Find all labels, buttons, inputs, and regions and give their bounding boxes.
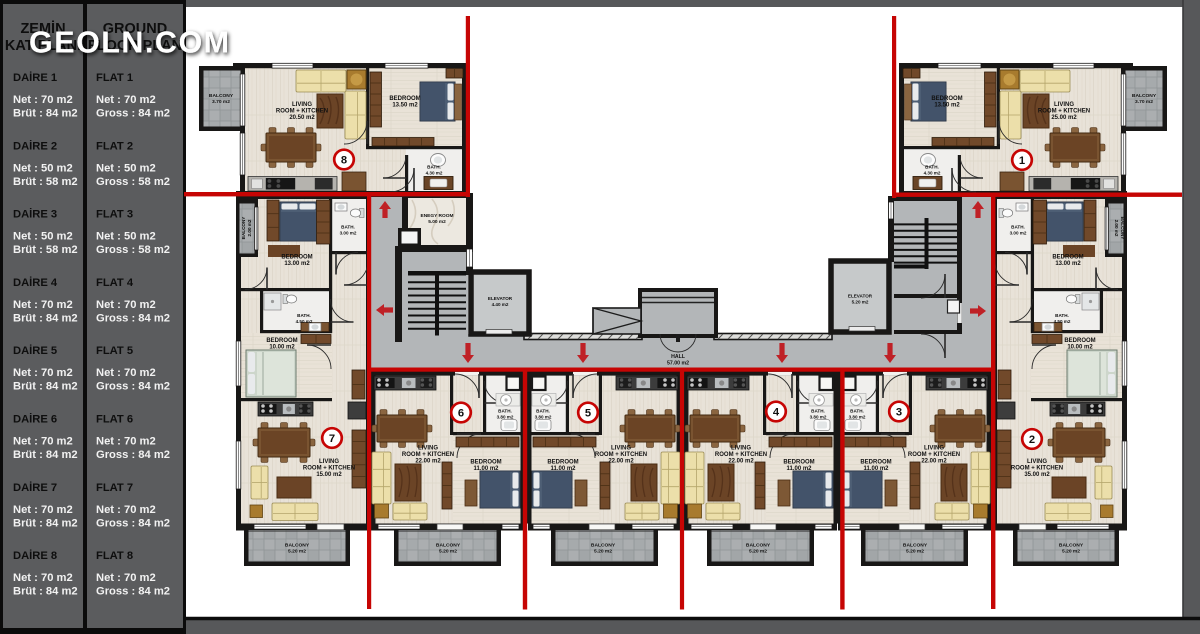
- svg-text:8: 8: [341, 155, 347, 167]
- svg-text:Net : 50 m2: Net : 50 m2: [96, 231, 156, 243]
- svg-text:BATH.: BATH.: [536, 409, 550, 414]
- svg-text:13.00 m2: 13.00 m2: [1055, 261, 1081, 267]
- svg-text:10.00 m2: 10.00 m2: [269, 345, 295, 351]
- svg-text:BALCONY: BALCONY: [746, 543, 771, 549]
- svg-text:Net : 70 m2: Net : 70 m2: [13, 367, 73, 379]
- svg-text:Gross : 84 m2: Gross : 84 m2: [96, 449, 170, 461]
- svg-text:57.00 m2: 57.00 m2: [667, 361, 689, 367]
- svg-text:5.20 m2: 5.20 m2: [288, 549, 306, 555]
- svg-text:LIVING: LIVING: [292, 102, 312, 108]
- svg-text:5.20 m2: 5.20 m2: [852, 300, 869, 305]
- svg-text:DAİRE 5: DAİRE 5: [13, 344, 57, 357]
- svg-text:FLAT 1: FLAT 1: [96, 72, 133, 84]
- svg-text:BALCONY: BALCONY: [209, 93, 234, 99]
- svg-text:Net : 70 m2: Net : 70 m2: [96, 367, 156, 379]
- svg-text:ENEGY ROOM: ENEGY ROOM: [421, 213, 454, 219]
- svg-text:2.00 m2: 2.00 m2: [1114, 220, 1119, 237]
- svg-text:ROOM + KITCHEN: ROOM + KITCHEN: [303, 466, 355, 472]
- svg-text:FLAT 6: FLAT 6: [96, 414, 133, 426]
- svg-text:ELEVATOR: ELEVATOR: [488, 296, 513, 301]
- svg-text:Net : 50 m2: Net : 50 m2: [13, 162, 73, 174]
- svg-text:BALCONY: BALCONY: [1059, 543, 1084, 549]
- svg-text:BATH.: BATH.: [925, 165, 939, 170]
- svg-text:11.00 m2: 11.00 m2: [473, 466, 499, 472]
- svg-text:ELEVATOR: ELEVATOR: [848, 294, 873, 299]
- svg-text:BATH.: BATH.: [297, 313, 311, 318]
- svg-text:Brüt : 84 m2: Brüt : 84 m2: [13, 381, 78, 393]
- svg-text:Net : 70 m2: Net : 70 m2: [13, 94, 73, 106]
- svg-text:LIVING: LIVING: [611, 446, 631, 452]
- svg-text:35.00 m2: 35.00 m2: [1024, 472, 1050, 478]
- svg-text:4.30 m2: 4.30 m2: [426, 170, 443, 175]
- svg-text:22.00 m2: 22.00 m2: [921, 459, 947, 465]
- svg-text:Net : 70 m2: Net : 70 m2: [13, 436, 73, 448]
- svg-text:22.00 m2: 22.00 m2: [728, 459, 754, 465]
- svg-text:10.00 m2: 10.00 m2: [1067, 345, 1093, 351]
- svg-text:Gross : 58 m2: Gross : 58 m2: [96, 244, 170, 256]
- svg-text:LIVING: LIVING: [1027, 459, 1047, 465]
- svg-text:DAİRE 7: DAİRE 7: [13, 481, 57, 494]
- svg-text:25.00 m2: 25.00 m2: [1051, 115, 1077, 121]
- svg-text:BATH.: BATH.: [850, 409, 864, 414]
- svg-text:20.50 m2: 20.50 m2: [289, 115, 315, 121]
- svg-text:Brüt : 84 m2: Brüt : 84 m2: [13, 312, 78, 324]
- svg-text:Net : 70 m2: Net : 70 m2: [96, 504, 156, 516]
- svg-text:BEDROOM: BEDROOM: [1064, 338, 1095, 344]
- svg-text:Net : 70 m2: Net : 70 m2: [13, 299, 73, 311]
- svg-text:FLAT 8: FLAT 8: [96, 550, 133, 562]
- svg-text:Net : 70 m2: Net : 70 m2: [96, 94, 156, 106]
- svg-text:LIVING: LIVING: [418, 446, 438, 452]
- svg-text:15.00 m2: 15.00 m2: [316, 472, 342, 478]
- svg-text:FLAT 5: FLAT 5: [96, 345, 133, 357]
- svg-text:DAİRE 2: DAİRE 2: [13, 139, 57, 152]
- svg-text:Brüt : 84 m2: Brüt : 84 m2: [13, 108, 78, 120]
- svg-text:DAİRE 4: DAİRE 4: [13, 276, 58, 289]
- svg-text:BEDROOM: BEDROOM: [931, 96, 962, 102]
- svg-text:11.00 m2: 11.00 m2: [550, 466, 576, 472]
- svg-text:ROOM + KITCHEN: ROOM + KITCHEN: [1011, 466, 1063, 472]
- svg-text:BATH.: BATH.: [427, 165, 441, 170]
- svg-text:Net : 70 m2: Net : 70 m2: [96, 572, 156, 584]
- svg-text:BATH.: BATH.: [1055, 313, 1069, 318]
- svg-text:BALCONY: BALCONY: [1132, 93, 1157, 99]
- svg-text:3.80 m2: 3.80 m2: [497, 414, 514, 419]
- svg-text:BEDROOM: BEDROOM: [860, 460, 891, 466]
- svg-text:DAİRE 1: DAİRE 1: [13, 71, 57, 84]
- svg-text:13.00 m2: 13.00 m2: [284, 261, 310, 267]
- svg-text:HALL: HALL: [671, 354, 686, 360]
- svg-text:5.20 m2: 5.20 m2: [439, 549, 457, 555]
- svg-text:Net : 70 m2: Net : 70 m2: [13, 572, 73, 584]
- svg-text:4.30 m2: 4.30 m2: [924, 170, 941, 175]
- svg-text:FLAT 3: FLAT 3: [96, 209, 133, 221]
- svg-text:DAİRE 8: DAİRE 8: [13, 549, 57, 562]
- svg-text:Net : 70 m2: Net : 70 m2: [13, 504, 73, 516]
- svg-text:LIVING: LIVING: [731, 446, 751, 452]
- svg-text:BATH.: BATH.: [498, 409, 512, 414]
- svg-text:DAİRE 3: DAİRE 3: [13, 208, 57, 221]
- svg-text:11.00 m2: 11.00 m2: [863, 466, 889, 472]
- svg-text:1: 1: [1019, 155, 1025, 167]
- svg-text:FLAT 4: FLAT 4: [96, 277, 134, 289]
- svg-text:22.00 m2: 22.00 m2: [415, 459, 441, 465]
- svg-text:5.20 m2: 5.20 m2: [749, 549, 767, 555]
- svg-text:3.80 m2: 3.80 m2: [849, 414, 866, 419]
- svg-text:BATH.: BATH.: [1011, 225, 1025, 230]
- svg-text:Brüt : 84 m2: Brüt : 84 m2: [13, 517, 78, 529]
- svg-text:2: 2: [1029, 434, 1035, 446]
- svg-text:4: 4: [773, 407, 780, 419]
- svg-text:Gross : 84 m2: Gross : 84 m2: [96, 312, 170, 324]
- svg-text:Gross : 84 m2: Gross : 84 m2: [96, 517, 170, 529]
- svg-text:BALCONY: BALCONY: [1120, 217, 1125, 240]
- svg-text:3: 3: [896, 407, 902, 419]
- svg-text:3.80 m2: 3.80 m2: [535, 414, 552, 419]
- svg-text:5.20 m2: 5.20 m2: [1062, 549, 1080, 555]
- svg-text:Brüt : 58 m2: Brüt : 58 m2: [13, 244, 78, 256]
- svg-text:Net : 50 m2: Net : 50 m2: [96, 162, 156, 174]
- svg-text:13.50 m2: 13.50 m2: [934, 103, 960, 109]
- svg-text:GEOLN.COM: GEOLN.COM: [29, 26, 231, 60]
- svg-text:Brüt : 84 m2: Brüt : 84 m2: [13, 449, 78, 461]
- svg-text:BEDROOM: BEDROOM: [1052, 255, 1083, 261]
- svg-text:ROOM + KITCHEN: ROOM + KITCHEN: [595, 452, 647, 458]
- svg-text:Net : 70 m2: Net : 70 m2: [96, 299, 156, 311]
- svg-text:3.00 m2: 3.00 m2: [1010, 230, 1027, 235]
- svg-text:BALCONY: BALCONY: [241, 217, 246, 240]
- svg-text:ROOM + KITCHEN: ROOM + KITCHEN: [276, 109, 328, 115]
- svg-text:BEDROOM: BEDROOM: [389, 96, 420, 102]
- svg-text:4.50 m2: 4.50 m2: [1054, 319, 1071, 324]
- svg-text:BEDROOM: BEDROOM: [547, 460, 578, 466]
- svg-text:LIVING: LIVING: [319, 459, 339, 465]
- svg-text:Gross : 84 m2: Gross : 84 m2: [96, 381, 170, 393]
- svg-text:Gross : 84 m2: Gross : 84 m2: [96, 108, 170, 120]
- svg-text:Gross : 58 m2: Gross : 58 m2: [96, 176, 170, 188]
- svg-text:3.80 m2: 3.80 m2: [810, 414, 827, 419]
- svg-text:5: 5: [585, 408, 591, 420]
- svg-text:3.70 m2: 3.70 m2: [1135, 99, 1153, 105]
- svg-text:ROOM + KITCHEN: ROOM + KITCHEN: [715, 452, 767, 458]
- svg-text:BALCONY: BALCONY: [591, 543, 616, 549]
- svg-text:Net : 50 m2: Net : 50 m2: [13, 231, 73, 243]
- svg-text:BALCONY: BALCONY: [903, 543, 928, 549]
- svg-text:2.00 m2: 2.00 m2: [247, 219, 252, 236]
- svg-text:Gross : 84 m2: Gross : 84 m2: [96, 586, 170, 598]
- svg-text:BALCONY: BALCONY: [285, 543, 310, 549]
- svg-text:3.70 m2: 3.70 m2: [212, 99, 230, 105]
- svg-text:FLAT 7: FLAT 7: [96, 482, 133, 494]
- svg-text:ROOM + KITCHEN: ROOM + KITCHEN: [908, 452, 960, 458]
- svg-text:22.00 m2: 22.00 m2: [608, 459, 634, 465]
- svg-text:FLAT 2: FLAT 2: [96, 140, 133, 152]
- svg-text:4.40 m2: 4.40 m2: [492, 302, 509, 307]
- svg-text:BATH.: BATH.: [811, 409, 825, 414]
- svg-text:DAİRE 6: DAİRE 6: [13, 413, 57, 426]
- svg-text:BEDROOM: BEDROOM: [281, 255, 312, 261]
- svg-text:Net : 70 m2: Net : 70 m2: [96, 436, 156, 448]
- svg-text:BEDROOM: BEDROOM: [470, 460, 501, 466]
- svg-text:3.00 m2: 3.00 m2: [340, 230, 357, 235]
- svg-text:5.00 m2: 5.00 m2: [428, 219, 446, 225]
- svg-text:BEDROOM: BEDROOM: [783, 460, 814, 466]
- svg-text:Brüt : 58 m2: Brüt : 58 m2: [13, 176, 78, 188]
- svg-text:7: 7: [329, 433, 335, 445]
- svg-text:ROOM + KITCHEN: ROOM + KITCHEN: [1038, 109, 1090, 115]
- svg-text:4.50 m2: 4.50 m2: [296, 319, 313, 324]
- svg-text:5.20 m2: 5.20 m2: [906, 549, 924, 555]
- svg-text:BATH.: BATH.: [341, 225, 355, 230]
- svg-text:11.00 m2: 11.00 m2: [786, 466, 812, 472]
- svg-text:6: 6: [458, 408, 464, 420]
- svg-text:5.20 m2: 5.20 m2: [594, 549, 612, 555]
- svg-text:BALCONY: BALCONY: [436, 543, 461, 549]
- svg-text:LIVING: LIVING: [924, 446, 944, 452]
- svg-text:BEDROOM: BEDROOM: [266, 338, 297, 344]
- svg-text:13.50 m2: 13.50 m2: [392, 103, 418, 109]
- svg-text:Brüt : 84 m2: Brüt : 84 m2: [13, 586, 78, 598]
- svg-text:ROOM + KITCHEN: ROOM + KITCHEN: [402, 452, 454, 458]
- svg-text:LIVING: LIVING: [1054, 102, 1074, 108]
